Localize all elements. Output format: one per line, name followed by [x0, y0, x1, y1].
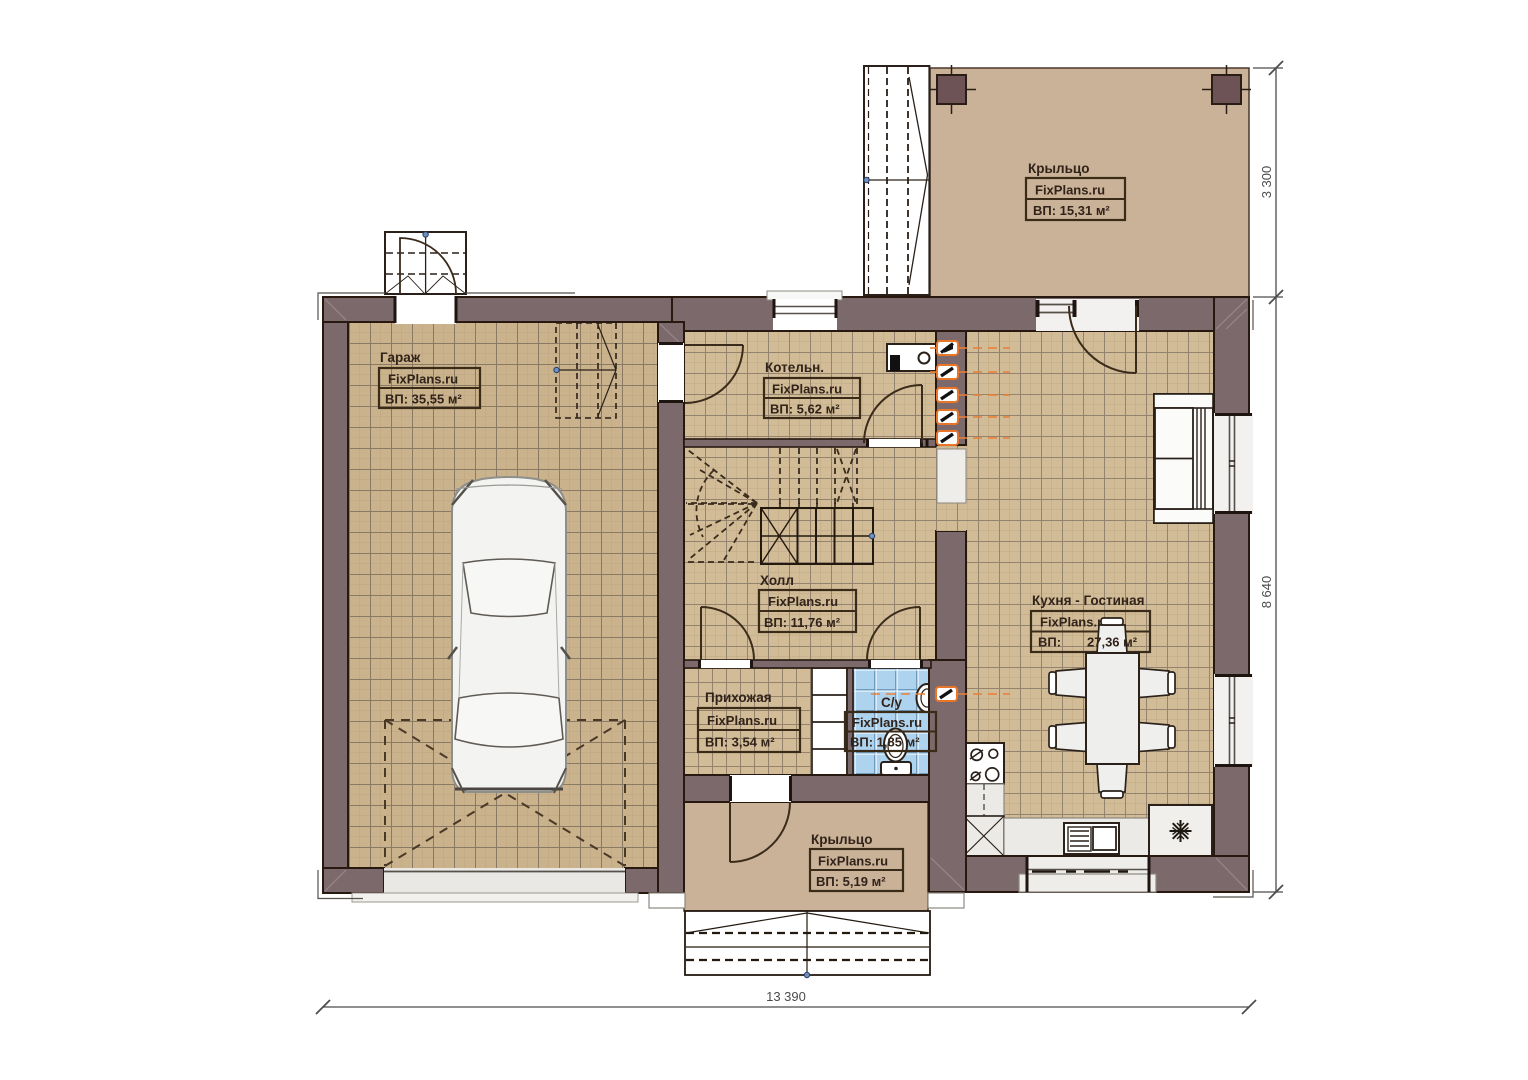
svg-text:ВП: 3,54 м²: ВП: 3,54 м²	[705, 735, 775, 750]
svg-text:ВП: 5,19 м²: ВП: 5,19 м²	[816, 874, 886, 889]
svg-text:Холл: Холл	[760, 573, 794, 588]
svg-text:Гараж: Гараж	[380, 350, 421, 365]
svg-text:FixPlans.ru: FixPlans.ru	[818, 854, 888, 869]
svg-text:27,36 м²: 27,36 м²	[1087, 635, 1138, 650]
svg-text:ВП: 11,76 м²: ВП: 11,76 м²	[764, 615, 841, 630]
svg-text:С/у: С/у	[881, 695, 903, 710]
svg-text:FixPlans.ru: FixPlans.ru	[1035, 183, 1105, 198]
svg-text:FixPlans.ru: FixPlans.ru	[388, 372, 458, 387]
svg-text:ВП: 5,62 м²: ВП: 5,62 м²	[770, 402, 840, 417]
svg-text:FixPlans.ru: FixPlans.ru	[768, 594, 838, 609]
svg-text:3 300: 3 300	[1259, 166, 1274, 199]
svg-text:Крыльцо: Крыльцо	[811, 832, 872, 847]
svg-text:ВП: 1,85 м²: ВП: 1,85 м²	[850, 735, 920, 750]
svg-text:FixPlans.ru: FixPlans.ru	[707, 713, 777, 728]
svg-text:Крыльцо: Крыльцо	[1028, 161, 1089, 176]
svg-text:Прихожая: Прихожая	[705, 690, 772, 705]
svg-text:ВП: 15,31 м²: ВП: 15,31 м²	[1033, 203, 1110, 218]
svg-text:ВП: 35,55 м²: ВП: 35,55 м²	[385, 392, 462, 407]
svg-text:FixPlans.ru: FixPlans.ru	[772, 382, 842, 397]
svg-text:ВП:: ВП:	[1038, 635, 1061, 650]
svg-text:8 640: 8 640	[1259, 576, 1274, 609]
svg-text:Кухня - Гостиная: Кухня - Гостиная	[1032, 593, 1144, 608]
svg-text:Котельн.: Котельн.	[765, 360, 824, 375]
svg-text:13 390: 13 390	[766, 989, 806, 1004]
svg-text:FixPlans.ru: FixPlans.ru	[852, 715, 922, 730]
